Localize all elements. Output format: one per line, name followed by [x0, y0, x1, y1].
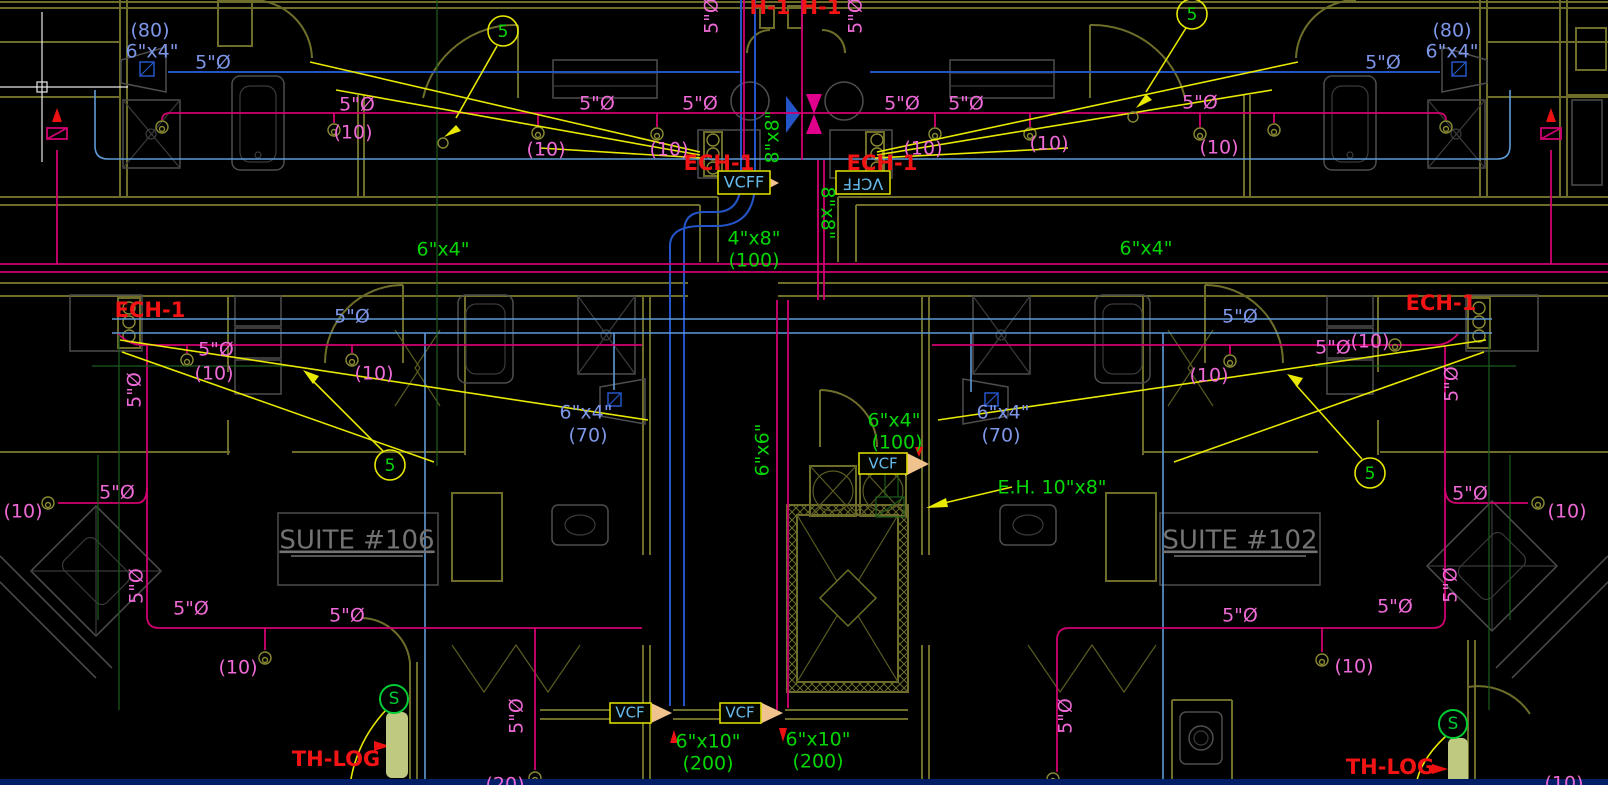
dim-5dia-topleft: 5"Ø — [195, 52, 231, 74]
dim-5dia-m1: 5"Ø — [198, 339, 234, 361]
eh-callout: E.H. 10"x8" — [997, 477, 1106, 499]
dim-70-right: (70) — [981, 425, 1020, 447]
suite-106-label: SUITE #106 — [279, 526, 434, 556]
dim-5dia-r2: 5"Ø — [1055, 698, 1077, 734]
dim-5dia-t3: 5"Ø — [682, 93, 718, 115]
damper-vcf-bl: VCF — [615, 704, 644, 722]
damper-vcff-left: VCFF — [724, 173, 765, 192]
thermostat — [386, 712, 408, 778]
dim-70-left: (70) — [568, 425, 607, 447]
dim-5dia-riser-r: 5"Ø — [845, 0, 867, 34]
shower — [123, 100, 180, 168]
shower — [578, 296, 635, 374]
toilet — [1180, 712, 1222, 764]
duct-8x8-b: 8"x8" — [817, 187, 839, 240]
damper-vcf-mid: VCF — [868, 455, 897, 473]
dim-5dia-topright: 5"Ø — [1365, 52, 1401, 74]
dim-5dia-m3: 5"Ø — [1315, 337, 1351, 359]
dim-5dia-l4: 5"Ø — [329, 605, 365, 627]
dim-10-t6: (10) — [1199, 137, 1238, 159]
dim-5dia-midright-blue: 5"Ø — [1222, 306, 1258, 328]
duct-6x4-center: 6"x4" — [868, 410, 921, 432]
keynote-5-midleft: 5 — [385, 456, 396, 476]
dim-20-bottom: (20) — [485, 774, 524, 785]
suite-102-label: SUITE #102 — [1162, 526, 1317, 556]
duct-8x8-a: 8"x8" — [762, 111, 784, 164]
dim-5dia-midleft-blue: 5"Ø — [334, 306, 370, 328]
tag-thlog-right: TH-LOG — [1346, 755, 1434, 779]
keynote-5-midright: 5 — [1365, 464, 1376, 484]
duct-6x10-right-cfm: (200) — [792, 751, 843, 773]
dim-5dia-l3: 5"Ø — [173, 598, 209, 620]
viewport-edge — [0, 779, 1608, 785]
floor-plan-drawing: (80)6"x4"5"Ø5"Ø(80)6"x4"5"Ø5"Ø6"x4"(70)6… — [0, 0, 1608, 785]
dim-5dia-t1: 5"Ø — [339, 94, 375, 116]
bathtub — [232, 76, 284, 170]
dim-10-t1: (10) — [333, 122, 372, 144]
dim-10-t5: (10) — [1029, 133, 1068, 155]
ech-unit — [1466, 295, 1538, 351]
dim-10-m2: (10) — [354, 363, 393, 385]
washer-unit — [1427, 501, 1557, 631]
dim-10-r3: (10) — [1544, 773, 1583, 785]
dim-5dia-r3: 5"Ø — [1377, 596, 1413, 618]
dim-5dia-t2: 5"Ø — [579, 93, 615, 115]
duct-6x10-left-cfm: (200) — [682, 753, 733, 775]
tag-ech1-centerright: ECH-1 — [847, 151, 918, 175]
tag-ech1-farright: ECH-1 — [1406, 291, 1477, 315]
damper-vcf-br: VCF — [725, 704, 754, 722]
dim-5dia-r4: 5"Ø — [1440, 567, 1462, 603]
sensor-s-right: S — [1448, 714, 1459, 734]
dim-10-t3: (10) — [649, 139, 688, 161]
dim-6x4-sink-right: 6"x4" — [977, 402, 1030, 424]
dim-5dia-t6: 5"Ø — [1182, 92, 1218, 114]
dim-10-t2: (10) — [526, 139, 565, 161]
duct-6x4-center-cfm: (100) — [871, 432, 922, 454]
dim-10-m4: (10) — [1189, 365, 1228, 387]
bathtub — [458, 295, 513, 383]
tag-h1-right: H-1 — [801, 0, 842, 19]
dim-5dia-l1: 5"Ø — [99, 482, 135, 504]
dim-10-r1: (10) — [1334, 656, 1373, 678]
tag-h1-left: H-1 — [750, 0, 791, 19]
sensor-s-left: S — [389, 689, 400, 709]
sprinkler-head — [438, 138, 448, 148]
duct-6x6: 6"x6" — [752, 424, 774, 477]
dim-6x4-topleft: 6"x4" — [126, 41, 179, 63]
duct-4x8-cfm: (100) — [728, 250, 779, 272]
dim-5dia-r5: 5"Ø — [1452, 483, 1488, 505]
dim-6x4-topright: 6"x4" — [1426, 41, 1479, 63]
bathtub — [1324, 76, 1376, 170]
dim-5dia-t5: 5"Ø — [948, 93, 984, 115]
keynote-5-topleft: 5 — [498, 22, 509, 42]
damper-vcff-right: VCFF — [843, 175, 884, 194]
shower — [1428, 100, 1485, 168]
duct-6x10-right: 6"x10" — [786, 729, 851, 751]
dim-5dia-riser-l: 5"Ø — [701, 0, 723, 34]
tag-ech1-centerleft: ECH-1 — [684, 151, 755, 175]
keynote-5-topright: 5 — [1187, 5, 1198, 25]
dim-10-m1: (10) — [194, 363, 233, 385]
dim-5dia-r1: 5"Ø — [1222, 605, 1258, 627]
dim-5dia-m4: 5"Ø — [1441, 366, 1463, 402]
dim-10-l1: (10) — [3, 501, 42, 523]
bathtub — [1095, 295, 1150, 383]
dim-80-topleft: (80) — [130, 20, 169, 42]
tag-thlog-left: TH-LOG — [292, 747, 380, 771]
tag-ech1-farleft: ECH-1 — [115, 298, 186, 322]
dim-10-l2: (10) — [218, 657, 257, 679]
dim-10-m3: (10) — [1350, 331, 1389, 353]
cad-viewport[interactable]: (80)6"x4"5"Ø5"Ø(80)6"x4"5"Ø5"Ø6"x4"(70)6… — [0, 0, 1608, 785]
dim-5dia-l2: 5"Ø — [126, 568, 148, 604]
duct-6x4-left: 6"x4" — [417, 239, 470, 261]
duct-4x8: 4"x8" — [728, 228, 781, 250]
dim-5dia-m2: 5"Ø — [124, 372, 146, 408]
duct-riser-flag-blue — [786, 96, 800, 133]
dim-80-topright: (80) — [1432, 20, 1471, 42]
shower — [973, 296, 1030, 374]
thermostat — [1448, 738, 1468, 785]
dim-6x4-sink-left: 6"x4" — [560, 402, 613, 424]
dim-5dia-t4: 5"Ø — [884, 93, 920, 115]
dim-10-r2: (10) — [1547, 501, 1586, 523]
duct-6x10-left: 6"x10" — [676, 731, 741, 753]
dim-5dia-l5: 5"Ø — [506, 698, 528, 734]
duct-6x4-right: 6"x4" — [1120, 238, 1173, 260]
